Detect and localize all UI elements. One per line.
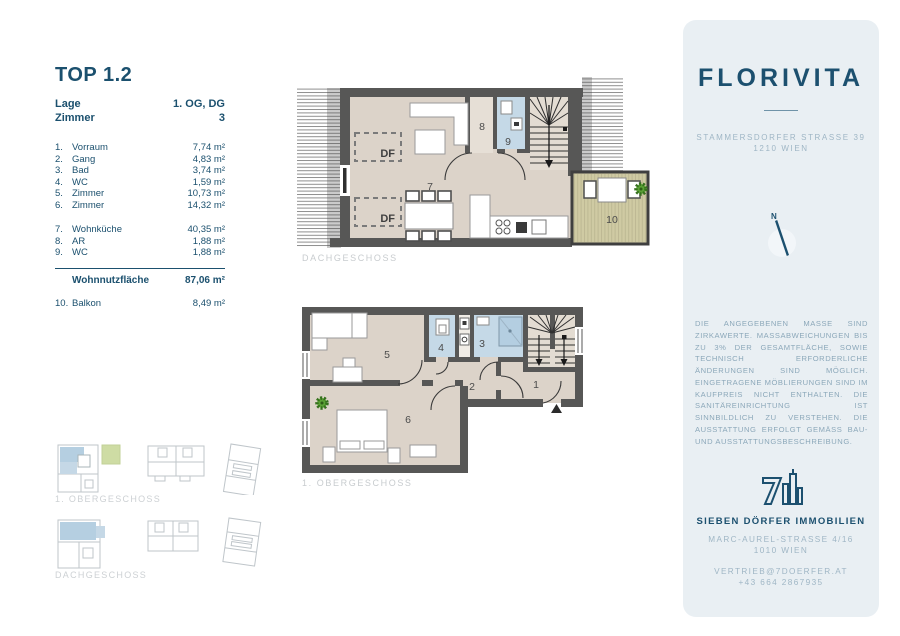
company-address: MARC-AUREL-STRASSE 4/16 1010 WIEN — [683, 534, 879, 556]
room-name: Balkon — [72, 298, 193, 310]
room-number: 7. — [55, 224, 72, 236]
room-row: 6.Zimmer14,32 m² — [55, 200, 225, 212]
company-address-line1: MARC-AUREL-STRASSE 4/16 — [683, 534, 879, 545]
unit-highlight — [96, 526, 105, 538]
keyplan-label-obergeschoss: 1. OBERGESCHOSS — [55, 494, 161, 504]
info-value: 3 — [219, 111, 225, 125]
room-number: 2. — [55, 154, 72, 166]
room-number-label: 4 — [438, 342, 444, 354]
room-number: 6. — [55, 200, 72, 212]
sink-icon — [477, 317, 489, 325]
info-label: Zimmer — [55, 111, 95, 125]
compass-north-label: N — [771, 212, 777, 221]
project-address: STAMMERSDORFER STRASSE 39 1210 WIEN — [683, 132, 879, 154]
plant-icon — [317, 398, 327, 408]
room-number: 5. — [55, 188, 72, 200]
plan-label-obergeschoss: 1. OBERGESCHOSS — [302, 478, 413, 488]
room-row: 9.WC1,88 m² — [55, 247, 225, 259]
stairs-icon — [530, 97, 568, 170]
room-area: 1,88 m² — [193, 247, 225, 259]
room-number: 10. — [55, 298, 72, 310]
room-area: 14,32 m² — [188, 200, 226, 212]
room-number-label: 9 — [505, 136, 511, 148]
room-area: 1,59 m² — [193, 177, 225, 189]
room-name: Zimmer — [72, 200, 188, 212]
room-name: Bad — [72, 165, 193, 177]
info-value: 1. OG, DG — [173, 97, 225, 111]
svg-text:DF: DF — [380, 213, 395, 225]
disclaimer-text: DIE ANGEGEBENEN MASSE SIND ZIRKAWERTE. M… — [695, 318, 868, 447]
room-area: 8,49 m² — [193, 298, 225, 310]
page: TOP 1.2 Lage 1. OG, DG Zimmer 3 1.Vorrau… — [0, 0, 900, 636]
keyplan-dachgeschoss — [55, 516, 270, 572]
divider — [764, 110, 798, 111]
room-number-label: 1 — [533, 379, 539, 391]
room-name: Zimmer — [72, 188, 188, 200]
unit-title: TOP 1.2 — [55, 64, 225, 87]
room-area: 1,88 m² — [193, 236, 225, 248]
company-name: SIEBEN DÖRFER IMMOBILIEN — [683, 516, 879, 527]
room-name: WC — [72, 247, 193, 259]
keyplan-obergeschoss — [55, 440, 270, 495]
room-row: 4.WC1,59 m² — [55, 177, 225, 189]
company-address-line2: 1010 WIEN — [683, 545, 879, 556]
unit-info-block: Lage 1. OG, DG Zimmer 3 — [55, 97, 225, 125]
room-row: 7.Wohnküche40,35 m² — [55, 224, 225, 236]
room-area: 40,35 m² — [188, 224, 226, 236]
contact-email: VERTRIEB@7DOERFER.AT — [683, 566, 879, 577]
window-icon — [340, 165, 350, 196]
room-row: 3.Bad3,74 m² — [55, 165, 225, 177]
room-row: 8.AR1,88 m² — [55, 236, 225, 248]
room-number: 8. — [55, 236, 72, 248]
room-area: 7,74 m² — [193, 142, 225, 154]
room-area: 3,74 m² — [193, 165, 225, 177]
room-number-label: 10 — [606, 214, 618, 226]
info-row-lage: Lage 1. OG, DG — [55, 97, 225, 111]
brand-title: FLORIVITA — [683, 64, 879, 93]
keyplan-label-dachgeschoss: DACHGESCHOSS — [55, 570, 147, 580]
shower-icon — [499, 317, 522, 346]
total-label: Wohnnutzfläche — [55, 275, 185, 287]
unit-info-panel: TOP 1.2 Lage 1. OG, DG Zimmer 3 1.Vorrau… — [55, 64, 225, 309]
keyplan-green-area — [102, 445, 120, 464]
company-logo-icon — [758, 468, 804, 508]
room-number: 1. — [55, 142, 72, 154]
room-name: Gang — [72, 154, 193, 166]
dining-table-icon — [405, 191, 453, 241]
room-number: 9. — [55, 247, 72, 259]
room-row: 5.Zimmer10,73 m² — [55, 188, 225, 200]
room-name: WC — [72, 177, 193, 189]
unit-highlight — [60, 522, 96, 540]
total-area-row: Wohnnutzfläche 87,06 m² — [55, 275, 225, 287]
room-name: Wohnküche — [72, 224, 188, 236]
room-number-label: 7 — [427, 181, 433, 193]
room-area: 4,83 m² — [193, 154, 225, 166]
room-row: 1.Vorraum7,74 m² — [55, 142, 225, 154]
room-number: 3. — [55, 165, 72, 177]
total-value: 87,06 m² — [185, 275, 225, 287]
entrance-arrow-icon — [551, 404, 562, 413]
divider — [55, 268, 225, 269]
room-list: 1.Vorraum7,74 m² 2.Gang4,83 m² 3.Bad3,74… — [55, 142, 225, 309]
room-row: 2.Gang4,83 m² — [55, 154, 225, 166]
unit-highlight — [60, 462, 77, 474]
toilet-icon — [436, 319, 449, 335]
room-name: AR — [72, 236, 193, 248]
info-label: Lage — [55, 97, 81, 111]
room-number-label: 8 — [479, 121, 485, 133]
plant-icon — [636, 184, 646, 194]
svg-text:DF: DF — [380, 148, 395, 160]
room-row: 10.Balkon8,49 m² — [55, 298, 225, 310]
info-sidebar: FLORIVITA STAMMERSDORFER STRASSE 39 1210… — [683, 20, 879, 617]
room-number-label: 2 — [469, 381, 475, 393]
floorplan-dachgeschoss: DF DF — [295, 75, 650, 253]
room-number: 4. — [55, 177, 72, 189]
room-area: 10,73 m² — [188, 188, 226, 200]
room-number-label: 6 — [405, 414, 411, 426]
floorplan-obergeschoss: 1 2 3 4 5 6 — [300, 305, 590, 477]
room-number-label: 5 — [384, 349, 390, 361]
project-address-line2: 1210 WIEN — [683, 143, 879, 154]
contact-block: VERTRIEB@7DOERFER.AT +43 664 2867935 — [683, 566, 879, 588]
stairs-icon — [528, 315, 575, 367]
project-address-line1: STAMMERSDORFER STRASSE 39 — [683, 132, 879, 143]
roof-hatch-right — [582, 77, 623, 172]
roof-hatch-left — [297, 88, 341, 248]
plan-label-dachgeschoss: DACHGESCHOSS — [302, 253, 398, 263]
room-name: Vorraum — [72, 142, 193, 154]
room-number-label: 3 — [479, 338, 485, 350]
info-row-zimmer: Zimmer 3 — [55, 111, 225, 125]
compass-icon: N — [761, 203, 801, 265]
contact-phone: +43 664 2867935 — [683, 577, 879, 588]
balcony — [572, 172, 648, 244]
